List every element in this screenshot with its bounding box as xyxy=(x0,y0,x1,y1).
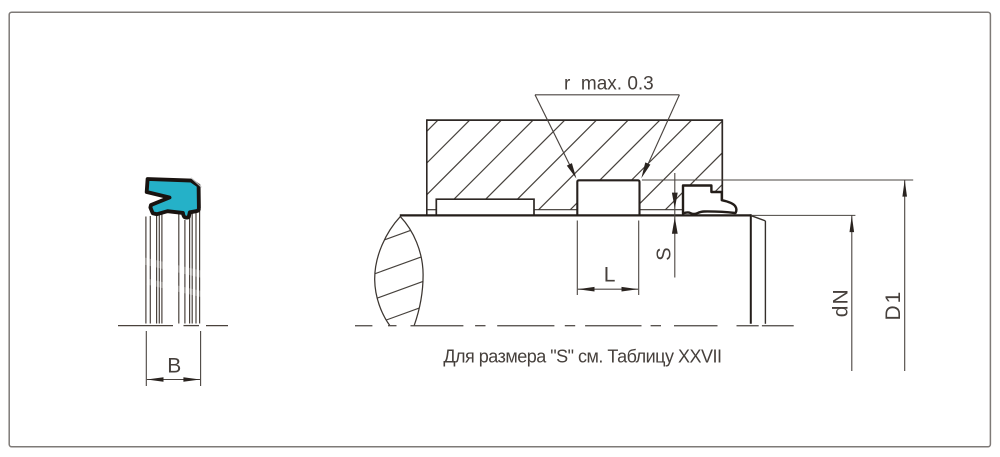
svg-text:B: B xyxy=(167,354,181,377)
svg-text:r max. 0.3: r max. 0.3 xyxy=(564,74,654,95)
svg-text:dN: dN xyxy=(830,288,853,317)
svg-text:D1: D1 xyxy=(882,290,905,321)
svg-text:S: S xyxy=(654,247,676,260)
svg-text:L: L xyxy=(604,264,616,287)
svg-text:Для размера "S" см. Таблицу XX: Для размера "S" см. Таблицу XXVII xyxy=(443,346,721,366)
